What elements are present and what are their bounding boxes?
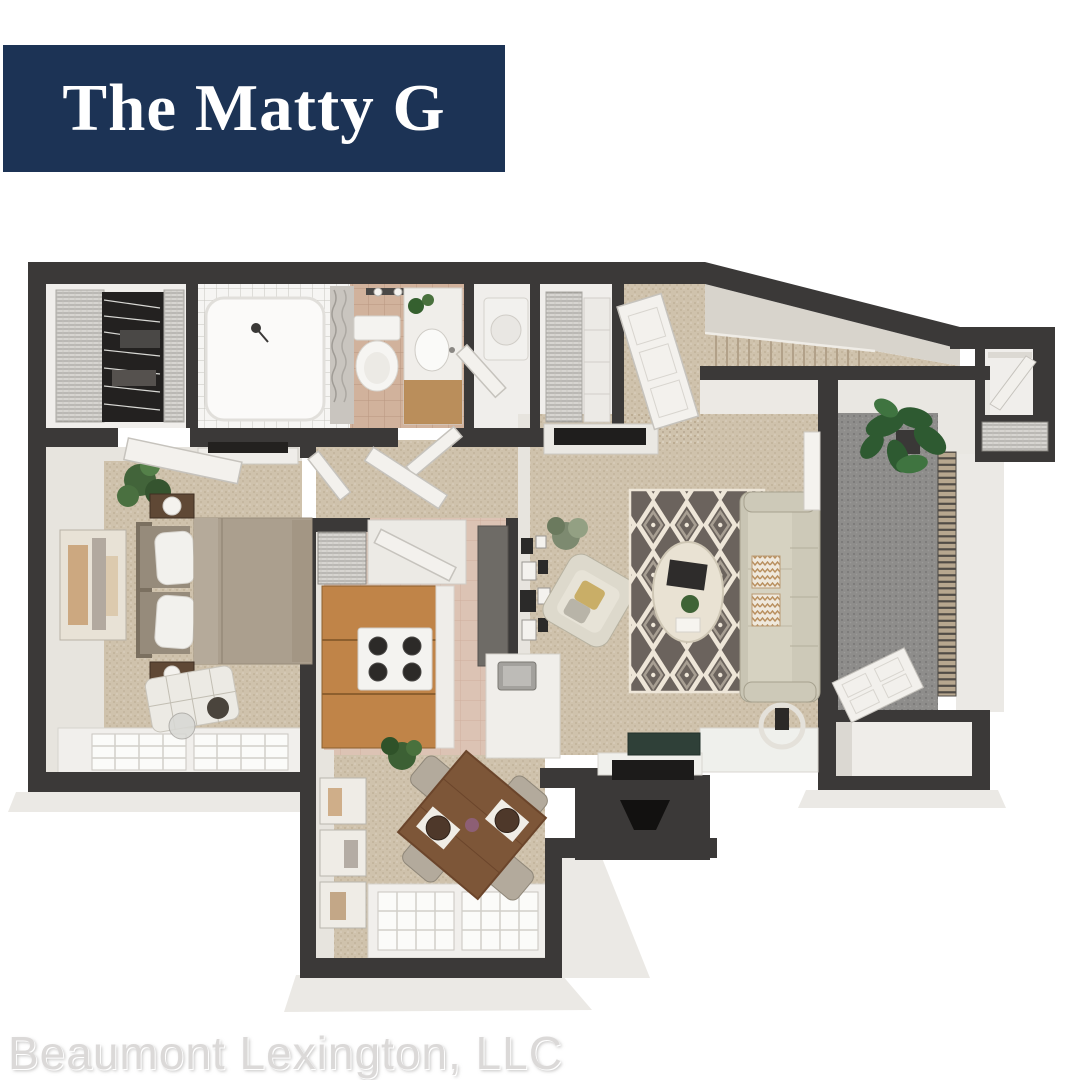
coffee-table <box>653 542 723 642</box>
linen-closet <box>546 292 610 422</box>
utility-closet <box>484 298 528 360</box>
balcony-storage <box>836 722 972 776</box>
bathroom <box>206 286 462 424</box>
stove <box>358 628 432 690</box>
tv <box>554 428 646 445</box>
refrigerator <box>478 526 508 666</box>
balcony-railing <box>938 452 956 696</box>
bathtub <box>206 298 324 420</box>
balcony-slider <box>804 432 820 510</box>
toilet <box>354 316 400 391</box>
tv <box>208 442 288 453</box>
sofa <box>740 492 820 702</box>
utility-rack <box>982 422 1048 451</box>
dining-art <box>320 778 366 928</box>
kitchen-sink-counter <box>486 654 560 758</box>
floor-plan <box>0 0 1080 1080</box>
vanity-sink <box>404 288 462 424</box>
floor-plan-card: The Matty G <box>0 0 1080 1080</box>
walk-in-closet <box>56 290 184 422</box>
hall-closet <box>318 532 366 584</box>
company-watermark: Beaumont Lexington, LLC <box>8 1026 563 1080</box>
